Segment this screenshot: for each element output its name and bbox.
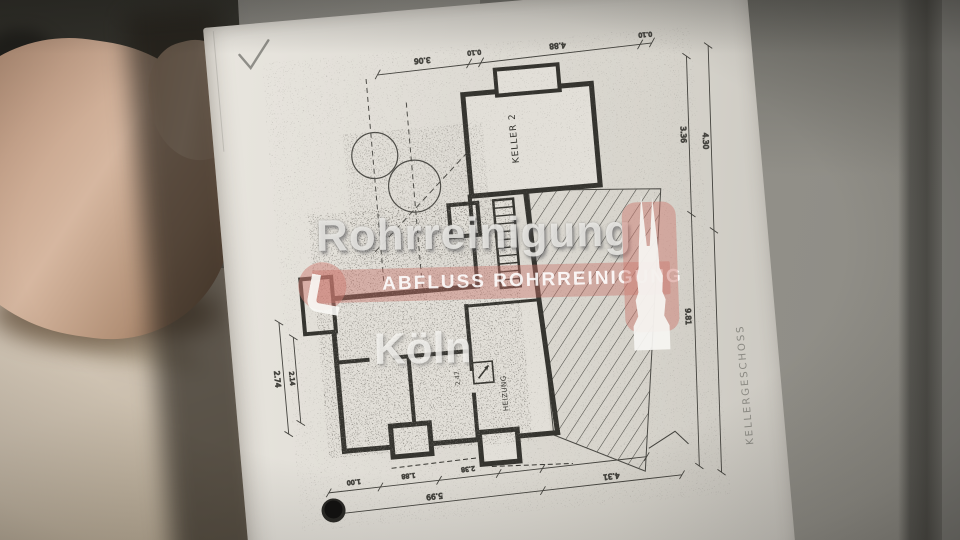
dim-top-1: 3.06	[413, 55, 431, 65]
wall-right-edge	[942, 0, 960, 540]
photo-scene: 3.06 0.10 4.88 0.10 3.36 4.30 9.81	[0, 0, 960, 540]
dim-top-4: 0.10	[638, 30, 653, 38]
koeln-dom-logo	[621, 201, 680, 333]
cathedral-icon	[615, 183, 685, 355]
dim-left-2: 2.14	[287, 371, 295, 386]
paper-crease	[213, 31, 224, 152]
wall-dark-strip	[898, 0, 946, 540]
dim-top-2: 0.10	[467, 48, 482, 56]
dim-top-3: 4.88	[549, 40, 567, 50]
watermark-title: Rohrreinigung	[316, 206, 633, 262]
dim-bottom-5: 4.31	[602, 471, 620, 482]
dim-left-1: 2.74	[272, 370, 282, 388]
dim-right-3: 9.81	[683, 308, 693, 325]
dim-right-2: 4.30	[701, 132, 711, 149]
watermark-city: Köln	[373, 323, 472, 375]
dim-right-1: 3.36	[679, 126, 689, 143]
pipe-elbow-icon	[305, 274, 344, 316]
dim-bottom-4: 5.99	[425, 491, 443, 502]
sheet-label: KELLERGESCHOSS	[735, 324, 756, 445]
paper-sheet: 3.06 0.10 4.88 0.10 3.36 4.30 9.81	[203, 0, 802, 540]
